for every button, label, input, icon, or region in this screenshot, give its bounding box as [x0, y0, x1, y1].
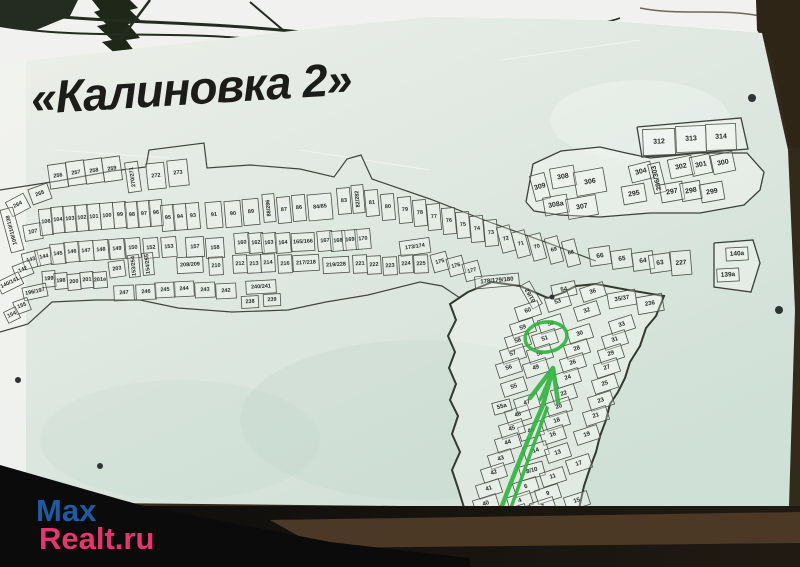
svg-text:78: 78 [417, 210, 424, 217]
plot-148: 148 [93, 239, 110, 260]
svg-text:224: 224 [401, 261, 411, 268]
plot-75: 75 [455, 211, 470, 238]
svg-text:93: 93 [190, 213, 197, 220]
svg-text:210: 210 [211, 263, 220, 269]
plot-312: 312 [643, 128, 676, 155]
svg-text:86: 86 [296, 205, 303, 212]
plot-221: 221 [353, 255, 368, 274]
plot-158: 158 [205, 237, 224, 258]
svg-text:273: 273 [173, 170, 183, 177]
scene-svg: «Калиновка 2» 256257258259270/2712722732… [0, 0, 800, 567]
svg-text:208/209: 208/209 [180, 261, 200, 268]
plot-154/255: 154/255 [142, 253, 155, 276]
svg-text:150: 150 [128, 245, 138, 252]
svg-text:163: 163 [264, 240, 274, 247]
svg-text:259: 259 [107, 165, 117, 172]
svg-text:162: 162 [251, 240, 261, 247]
plot-210: 210 [209, 257, 224, 276]
svg-text:87: 87 [281, 207, 288, 214]
plot-198: 198 [54, 272, 68, 289]
plot-201a: 201a [92, 271, 107, 288]
plot-299: 299 [699, 181, 725, 203]
svg-text:90: 90 [230, 211, 237, 218]
plot-242: 242 [216, 283, 237, 299]
plot-82/282: 82/282 [351, 185, 365, 214]
plot-219/228: 219/228 [323, 256, 350, 273]
plot-93: 93 [185, 202, 200, 229]
plot-79: 79 [397, 196, 412, 223]
svg-text:98: 98 [129, 212, 136, 219]
svg-text:100: 100 [102, 213, 112, 220]
screw [15, 377, 21, 383]
svg-text:157: 157 [190, 244, 200, 251]
svg-text:225: 225 [416, 261, 425, 267]
plot-259: 259 [101, 156, 122, 182]
svg-text:217/218: 217/218 [296, 259, 316, 266]
svg-text:146: 146 [67, 249, 77, 256]
svg-text:95: 95 [165, 215, 172, 222]
svg-text:63: 63 [656, 259, 665, 267]
svg-text:106: 106 [41, 219, 51, 226]
svg-text:149: 149 [112, 246, 122, 253]
plot-78: 78 [412, 199, 427, 226]
svg-text:239: 239 [267, 297, 276, 303]
plot-147: 147 [78, 240, 95, 261]
plot-308a: 308a [543, 194, 570, 216]
plot-90: 90 [224, 200, 242, 227]
svg-text:64: 64 [639, 257, 648, 265]
plot-77: 77 [426, 203, 441, 230]
svg-text:198: 198 [56, 278, 66, 285]
svg-text:104: 104 [53, 217, 64, 224]
plot-213: 213 [247, 255, 262, 274]
svg-text:214: 214 [263, 260, 273, 267]
plot-66: 66 [588, 246, 611, 267]
svg-text:246: 246 [141, 289, 150, 295]
svg-text:272: 272 [151, 173, 161, 180]
plot-223: 223 [383, 257, 398, 276]
svg-text:75: 75 [460, 222, 467, 229]
svg-text:221: 221 [355, 261, 364, 267]
svg-text:80: 80 [385, 204, 392, 211]
plot-258: 258 [83, 158, 104, 184]
plot-74: 74 [469, 215, 484, 242]
svg-text:165/166: 165/166 [293, 238, 313, 245]
svg-text:83: 83 [341, 198, 348, 205]
svg-text:314: 314 [715, 133, 727, 140]
svg-text:84/85: 84/85 [313, 203, 327, 210]
plot-149: 149 [109, 238, 126, 259]
svg-text:203: 203 [112, 265, 122, 272]
svg-text:212: 212 [235, 261, 244, 267]
plot-73: 73 [483, 219, 498, 246]
svg-text:312: 312 [653, 138, 665, 145]
svg-text:153: 153 [164, 244, 174, 251]
svg-text:169: 169 [345, 237, 355, 244]
plot-63: 63 [648, 253, 671, 274]
plot-88/286: 88/286 [262, 194, 276, 223]
svg-text:201: 201 [82, 277, 92, 284]
plot-246: 246 [136, 284, 157, 300]
svg-text:168: 168 [333, 238, 343, 245]
plot-94: 94 [172, 203, 187, 230]
svg-text:170: 170 [358, 236, 368, 243]
plot-165/166: 165/166 [291, 232, 315, 251]
plot-225: 225 [414, 255, 429, 274]
svg-text:99: 99 [117, 212, 124, 219]
svg-text:76: 76 [446, 218, 453, 225]
plot-140a: 140a [726, 247, 749, 261]
svg-text:101: 101 [89, 214, 99, 221]
svg-text:102: 102 [77, 215, 87, 222]
plot-217/218: 217/218 [293, 254, 320, 271]
plot-91: 91 [205, 201, 223, 228]
plot-203: 203 [108, 260, 126, 278]
svg-text:164: 164 [278, 240, 289, 247]
plot-212: 212 [233, 255, 248, 274]
plot-314: 314 [706, 123, 737, 150]
svg-text:200: 200 [69, 279, 79, 286]
svg-text:77: 77 [431, 214, 438, 221]
svg-text:245: 245 [160, 287, 169, 293]
svg-text:66: 66 [596, 252, 605, 260]
plot-87: 87 [276, 196, 291, 223]
watermark-line2: Realt.ru [39, 521, 154, 556]
svg-text:96: 96 [153, 210, 160, 217]
plot-214: 214 [261, 254, 276, 273]
plot-81: 81 [364, 189, 379, 216]
plot-300: 300 [710, 151, 735, 174]
plot-80: 80 [380, 193, 395, 220]
plot-164: 164 [275, 232, 292, 253]
plot-89: 89 [242, 198, 260, 225]
screw [775, 306, 783, 314]
plot-247: 247 [114, 285, 135, 301]
svg-text:213: 213 [249, 261, 258, 267]
svg-text:219/228: 219/228 [326, 261, 346, 268]
svg-text:201a: 201a [94, 276, 108, 283]
svg-text:199: 199 [44, 276, 54, 283]
plot-308: 308 [549, 165, 576, 189]
svg-text:243: 243 [200, 287, 209, 293]
plot-245: 245 [155, 282, 176, 298]
svg-text:158: 158 [210, 245, 220, 252]
plot-208/209: 208/209 [177, 256, 204, 273]
svg-text:258: 258 [89, 167, 99, 174]
screw [97, 463, 103, 469]
plot-240/241: 240/241 [246, 280, 277, 295]
svg-text:81: 81 [369, 200, 376, 207]
plot-86: 86 [291, 194, 306, 221]
screw [748, 94, 756, 102]
svg-text:79: 79 [402, 207, 409, 214]
svg-text:91: 91 [211, 212, 218, 219]
plot-239: 239 [263, 294, 281, 307]
svg-text:97: 97 [141, 211, 148, 218]
plot-83: 83 [336, 187, 351, 214]
plot-313: 313 [676, 125, 707, 152]
plot-257: 257 [65, 160, 86, 186]
plot-298: 298 [680, 180, 703, 201]
map-dot [550, 295, 555, 300]
svg-text:160: 160 [237, 240, 247, 247]
plot-301: 301 [689, 154, 713, 177]
plot-244: 244 [174, 281, 195, 297]
svg-text:73: 73 [488, 230, 495, 237]
svg-text:216: 216 [280, 261, 289, 267]
svg-text:65: 65 [618, 255, 627, 263]
plot-224: 224 [399, 255, 414, 274]
plot-153: 153 [161, 236, 178, 257]
svg-text:147: 147 [81, 248, 91, 255]
svg-text:238: 238 [245, 299, 254, 305]
svg-text:227: 227 [675, 259, 687, 267]
plot-295: 295 [621, 183, 647, 205]
plot-216: 216 [278, 255, 293, 274]
svg-text:145: 145 [53, 251, 63, 258]
plot-306: 306 [573, 168, 607, 197]
plot-273: 273 [167, 159, 190, 187]
plot-157: 157 [185, 236, 204, 257]
plot-65: 65 [610, 249, 633, 270]
plot-222: 222 [367, 256, 382, 275]
plot-238: 238 [241, 296, 259, 309]
svg-text:240/241: 240/241 [251, 283, 271, 290]
svg-text:256: 256 [53, 172, 63, 179]
plot-200: 200 [67, 273, 81, 290]
plot-227: 227 [670, 250, 692, 276]
svg-text:152: 152 [146, 245, 156, 252]
svg-text:139a: 139a [721, 271, 736, 279]
plot-139a: 139a [717, 268, 740, 282]
svg-text:313: 313 [685, 135, 697, 142]
plot-256: 256 [47, 163, 68, 189]
svg-text:103: 103 [65, 216, 75, 223]
svg-text:242: 242 [221, 288, 230, 294]
svg-text:222: 222 [369, 262, 378, 268]
plot-76: 76 [441, 207, 456, 234]
svg-text:223: 223 [385, 263, 394, 269]
plot-272: 272 [146, 162, 167, 190]
svg-text:140a: 140a [730, 250, 745, 258]
plot-84/85: 84/85 [307, 193, 333, 221]
plot-201: 201 [80, 271, 94, 288]
plot-101: 101 [86, 203, 101, 230]
svg-text:257: 257 [71, 169, 81, 176]
svg-text:247: 247 [119, 290, 128, 296]
plot-100: 100 [99, 202, 114, 229]
svg-text:167: 167 [320, 238, 330, 245]
plot-170: 170 [355, 228, 372, 249]
plot-243: 243 [195, 282, 216, 298]
plot-153/254: 153/254 [128, 255, 141, 278]
svg-text:244: 244 [179, 286, 189, 293]
photo-of-plot-map-sign: «Калиновка 2» 256257258259270/2712722732… [0, 0, 800, 567]
svg-text:148: 148 [96, 247, 106, 254]
svg-text:89: 89 [248, 209, 255, 216]
